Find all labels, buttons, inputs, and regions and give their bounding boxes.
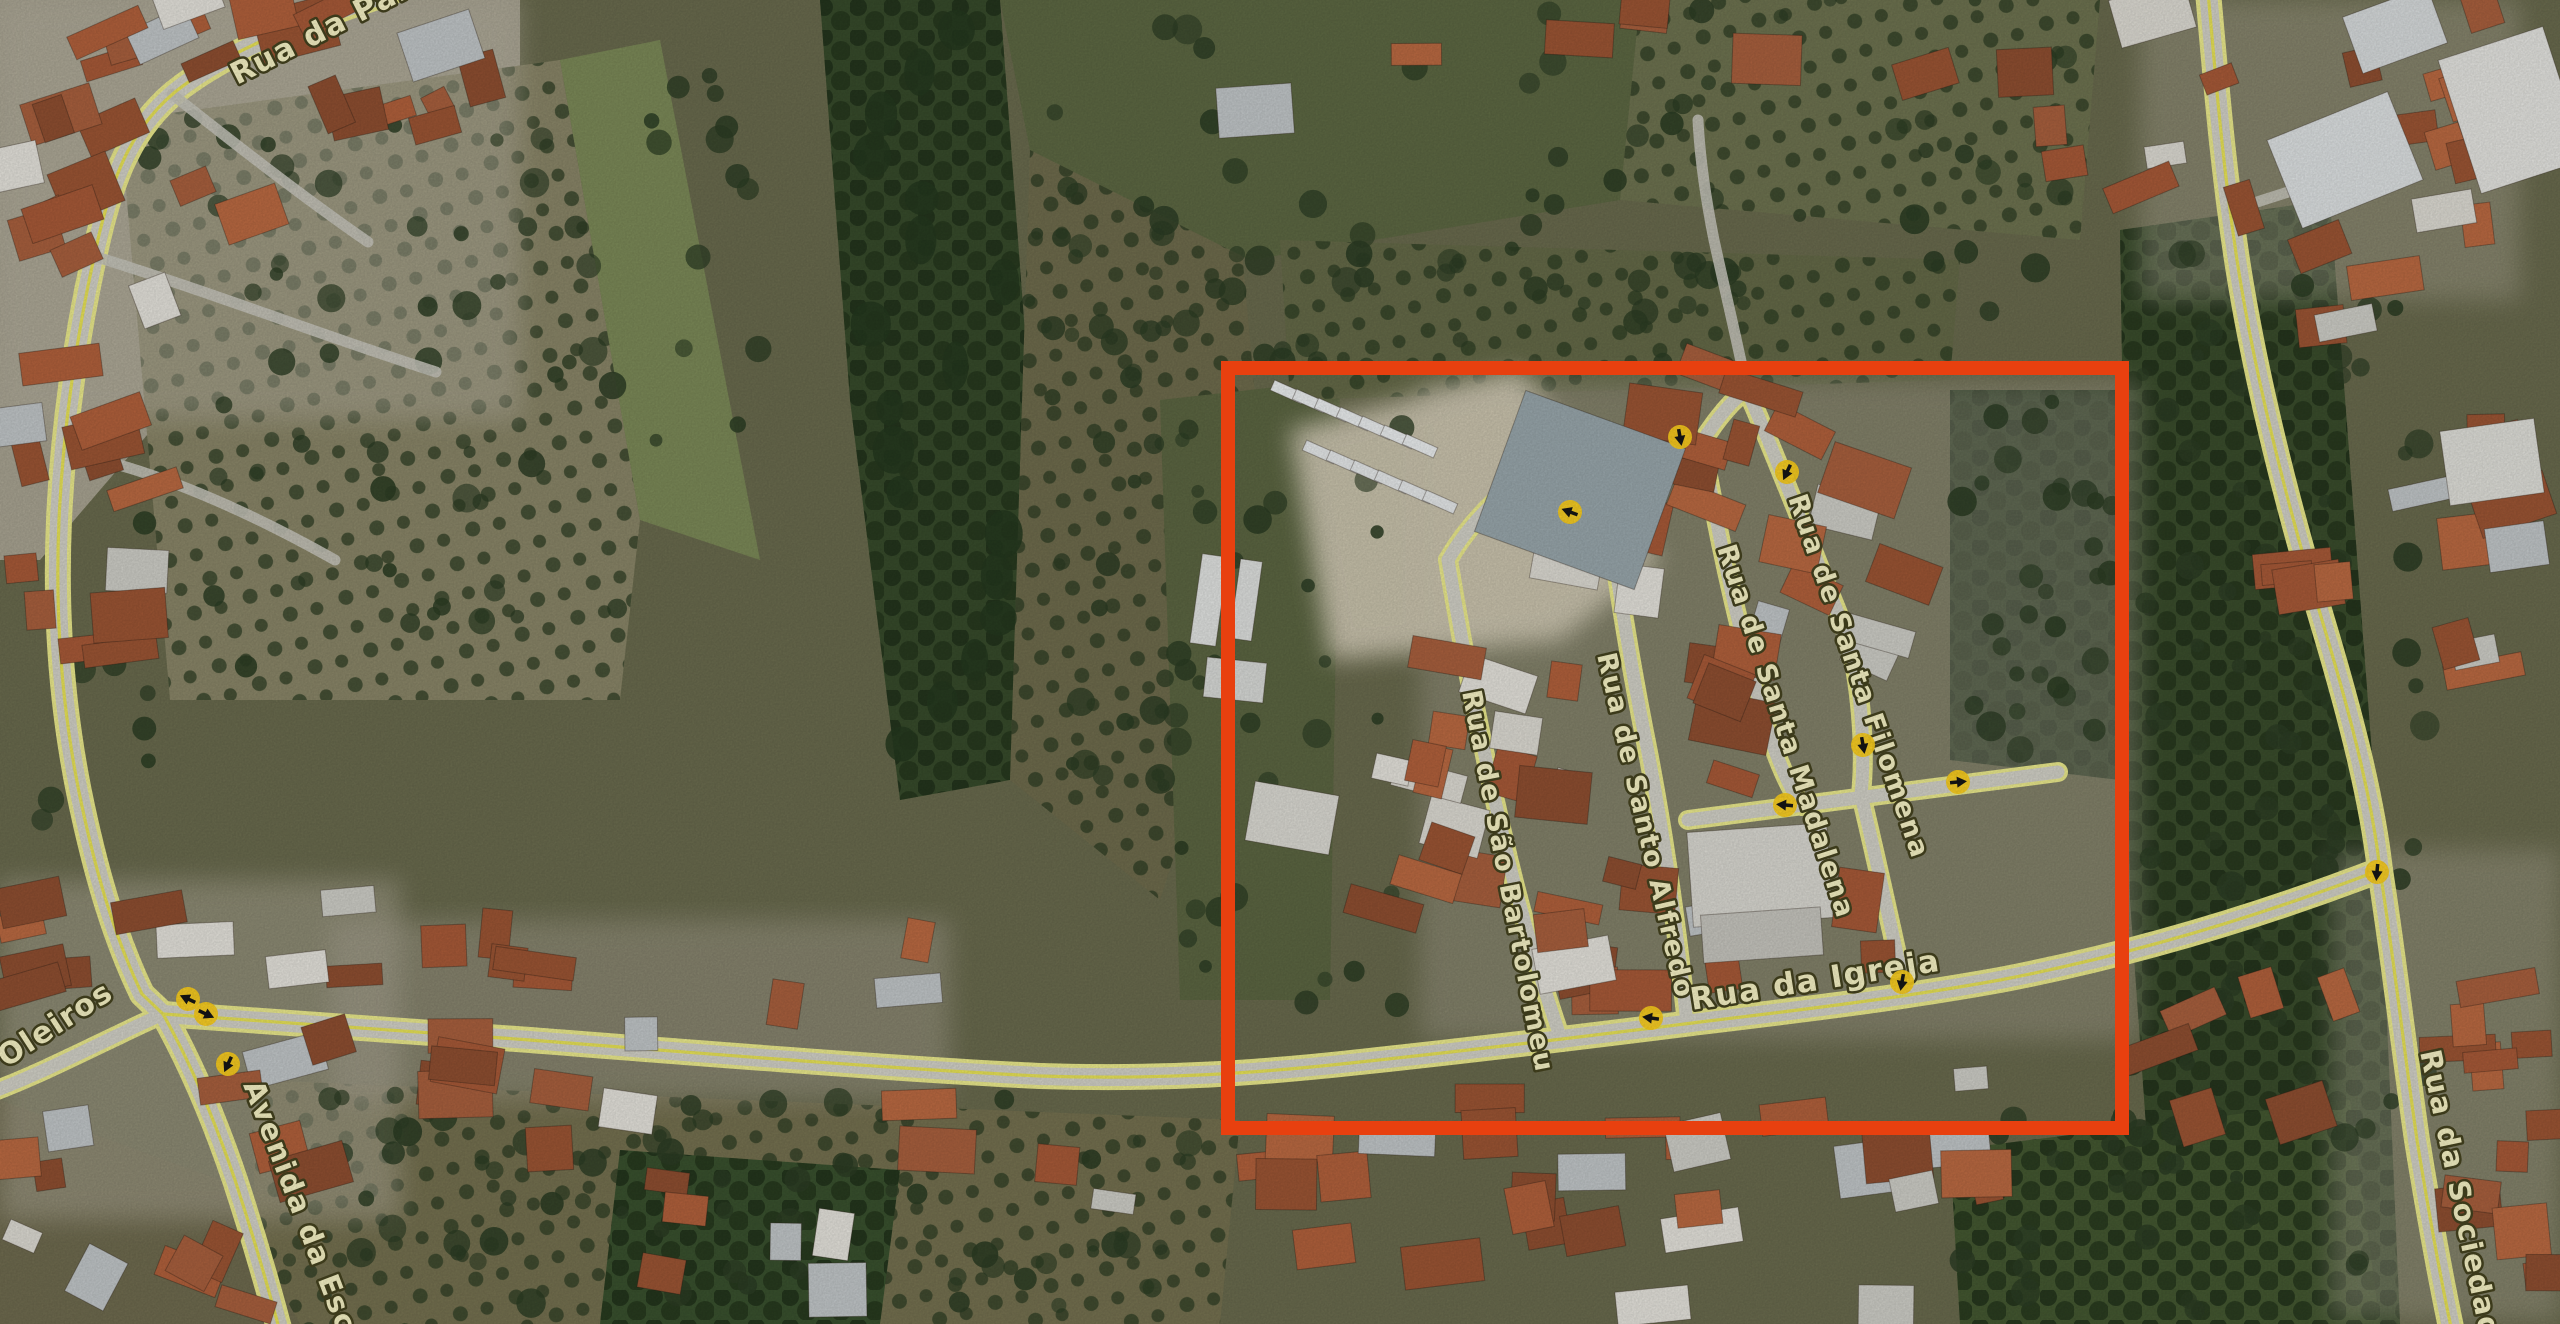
satellite-map[interactable]: Rua da PalmaOleirosAvenida da Escola Nov… (0, 0, 2560, 1324)
map-canvas: Rua da PalmaOleirosAvenida da Escola Nov… (0, 0, 2560, 1324)
